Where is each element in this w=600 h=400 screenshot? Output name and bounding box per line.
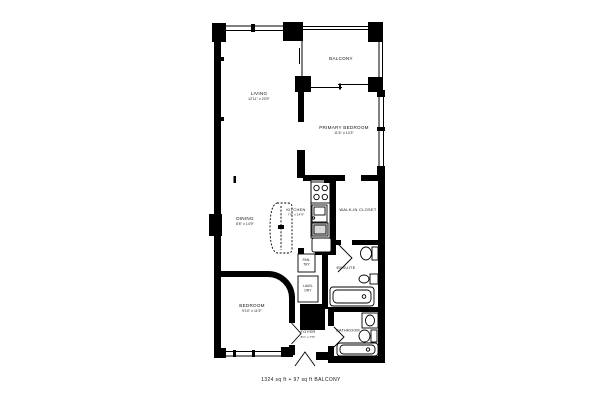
ensuite-bathtub-symbol: [330, 287, 374, 306]
ensuite-label: ENSUITE: [336, 265, 355, 270]
entry-door-swing: [295, 352, 315, 366]
bathroom-fixtures: [337, 313, 378, 356]
bathroom-toilet-symbol: [359, 330, 377, 342]
primary-bedroom-label: PRIMARY BEDROOM: [319, 125, 369, 130]
living-dims: 12'11" x 23'9": [248, 97, 270, 101]
bathroom-sink-symbol: [362, 313, 378, 328]
kitchen-dims: 7'6" x 14'9": [288, 213, 304, 217]
balcony-label: BALCONY: [329, 56, 353, 61]
walk-in-closet-label: WALK-IN CLOSET: [339, 207, 376, 212]
primary-bedroom-dims: 11'6" x 14'3": [334, 131, 354, 135]
living-label: LIVING: [251, 91, 268, 96]
laundry-label-line1: LAUN-: [303, 284, 313, 288]
room-labels: LIVING 12'11" x 23'9" BALCONY PRIMARY BE…: [236, 56, 377, 339]
bedroom-dims: 9'10" x 11'9": [242, 309, 262, 313]
floor-plan-svg: LIVING 12'11" x 23'9" BALCONY PRIMARY BE…: [0, 0, 600, 400]
foyer-dims: 8'1" x 7'5": [301, 335, 316, 339]
laundry-label-line2: DRY: [305, 289, 313, 293]
dining-dims: 8'5" x 14'9": [236, 222, 255, 226]
ensuite-toilet-symbol: [361, 247, 379, 260]
ensuite-sink-symbol: [359, 274, 378, 284]
foyer-label: FOYER: [300, 329, 315, 334]
pantry-label-line2: TRY: [303, 263, 310, 267]
dishwasher-symbol: [312, 223, 328, 236]
pantry-label-line1: PAN-: [303, 258, 311, 262]
area-caption: 1324 sq ft + 97 sq ft BALCONY: [261, 377, 341, 383]
bathroom-label: BATHROOM: [336, 329, 360, 333]
kitchen-label: KITCHEN: [286, 207, 305, 212]
kitchen-fixtures: [270, 180, 331, 253]
bathroom-bathtub-symbol: [337, 343, 378, 356]
fridge-symbol: [312, 238, 331, 252]
ensuite-fixtures: [330, 247, 378, 306]
dining-label: DINING: [236, 216, 254, 221]
curved-wall: [268, 274, 292, 298]
floor-plan-canvas: LIVING 12'11" x 23'9" BALCONY PRIMARY BE…: [0, 0, 600, 400]
bedroom-label: BEDROOM: [239, 303, 265, 308]
